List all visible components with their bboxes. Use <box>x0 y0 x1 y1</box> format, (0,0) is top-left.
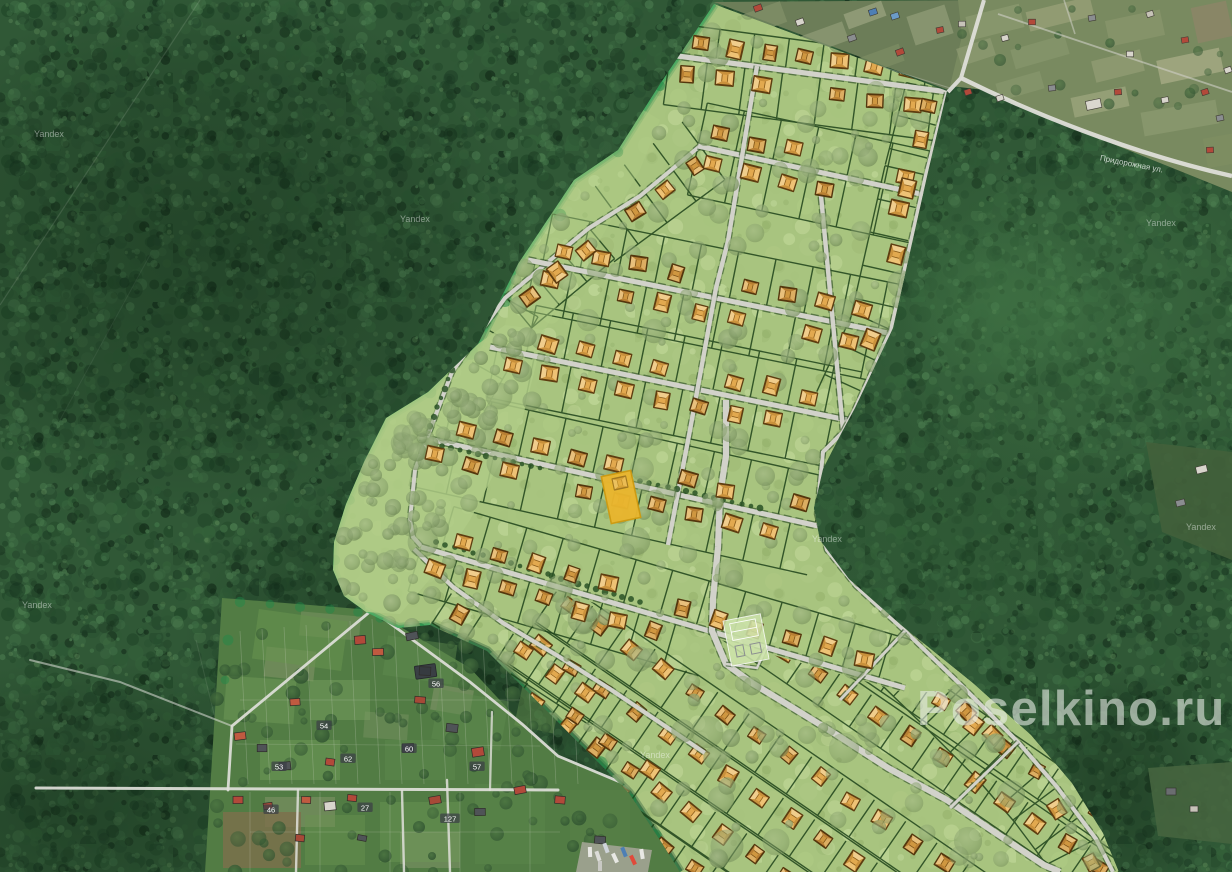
svg-text:Yandex: Yandex <box>1186 522 1216 532</box>
svg-text:Yandex: Yandex <box>812 534 842 544</box>
svg-text:57: 57 <box>473 763 481 772</box>
svg-text:Yandex: Yandex <box>1146 218 1176 228</box>
svg-text:53: 53 <box>275 763 283 772</box>
svg-text:Yandex: Yandex <box>22 600 52 610</box>
svg-text:46: 46 <box>267 806 275 815</box>
svg-text:Yandex: Yandex <box>640 750 670 760</box>
svg-text:62: 62 <box>344 755 352 764</box>
svg-text:56: 56 <box>432 680 440 689</box>
svg-text:Poselkino.ru: Poselkino.ru <box>917 682 1225 736</box>
svg-text:60: 60 <box>405 745 413 754</box>
svg-text:27: 27 <box>361 804 369 813</box>
svg-text:Yandex: Yandex <box>34 129 64 139</box>
svg-text:Yandex: Yandex <box>400 214 430 224</box>
svg-text:127: 127 <box>444 815 457 824</box>
svg-text:54: 54 <box>320 722 328 731</box>
